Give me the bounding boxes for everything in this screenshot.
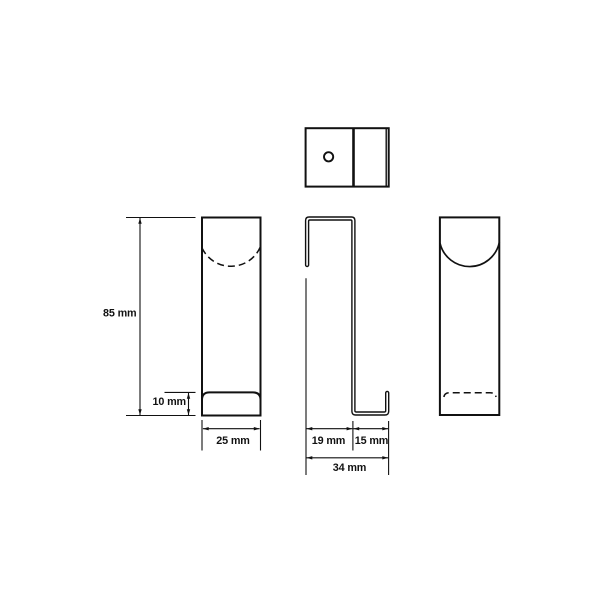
svg-text:15 mm: 15 mm: [355, 435, 388, 447]
svg-text:25 mm: 25 mm: [216, 435, 249, 447]
svg-text:19 mm: 19 mm: [312, 435, 345, 447]
svg-text:34 mm: 34 mm: [333, 462, 366, 474]
svg-text:85 mm: 85 mm: [103, 308, 136, 320]
svg-text:10 mm: 10 mm: [153, 396, 186, 408]
